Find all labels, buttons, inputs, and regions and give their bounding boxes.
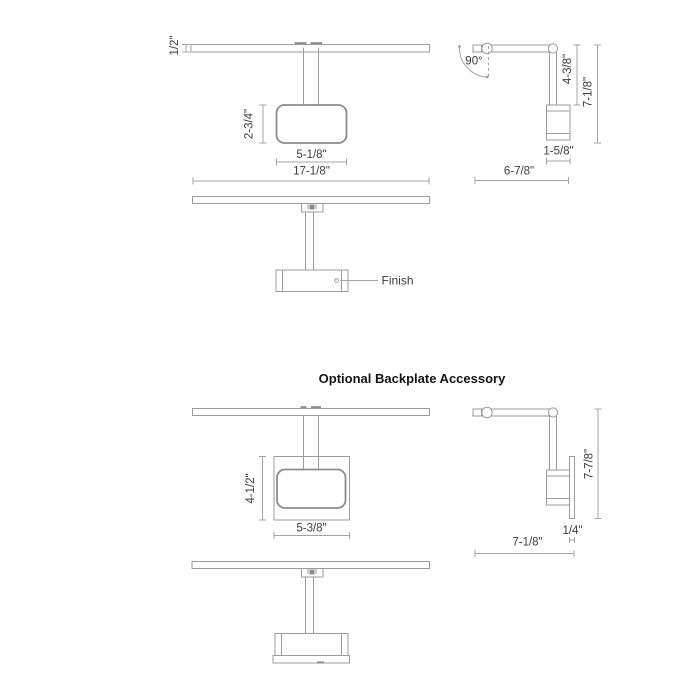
mount-bracket (302, 204, 324, 213)
section-title: Optional Backplate Accessory (319, 371, 506, 386)
dim-overall-depth: 7-1/8" (475, 537, 574, 558)
light-bar (192, 562, 430, 569)
set-screw (310, 205, 315, 210)
dim-overall-height: 7-7/8" (584, 409, 602, 519)
fixture-side-view: 90° 4-3/8" 7-1/8" 1-5/8" 6-7/8" (458, 43, 601, 184)
finish-callout: Finish (340, 274, 414, 288)
dimension-drawing: 1/2" 2-3/4" 5-1/8" 17-1/8" (0, 0, 700, 700)
canopy (275, 634, 348, 656)
arm-pivot (548, 44, 557, 53)
backplate-square (274, 457, 350, 521)
accessory-side-view: 7-7/8" 1/4" 7-1/8" (473, 407, 602, 557)
stem (306, 212, 314, 270)
backplate-edge (273, 656, 350, 664)
dim-head-width: 1-5/8" (543, 146, 573, 165)
dim-plate-thickness: 1/4" (562, 525, 582, 543)
mount-bracket (302, 569, 324, 578)
fixture-rear-view: Finish (193, 197, 430, 292)
backplate-profile (570, 457, 575, 519)
dim-label-overall-height: 7-7/8" (584, 449, 596, 479)
lamp-head (547, 105, 571, 140)
dim-bar-height: 1/2" (169, 35, 190, 55)
light-bar (193, 409, 430, 416)
dim-label-backplate-width: 5-1/8" (296, 149, 326, 161)
stem (304, 52, 319, 105)
dim-label-backplate-width: 5-3/8" (296, 523, 326, 535)
accessory-front-view: 4-1/2" 5-3/8" (193, 407, 430, 539)
stem (306, 577, 314, 634)
dim-overall-height: 7-1/8" (583, 45, 601, 143)
dim-label-backplate-height: 2-3/4" (244, 109, 256, 139)
backplate (277, 105, 347, 143)
dim-label-head-width: 1-5/8" (543, 146, 573, 158)
dim-overall-depth: 6-7/8" (475, 166, 569, 185)
canopy (276, 270, 348, 292)
dim-label-overall-depth: 6-7/8" (504, 166, 534, 178)
dim-label-overall-width: 17-1/8" (293, 166, 330, 178)
stem (550, 52, 557, 105)
arm-pivot (548, 408, 557, 417)
dim-backplate-width: 5-1/8" (277, 149, 347, 166)
dim-backplate-height: 2-3/4" (244, 105, 267, 143)
dim-arm-drop: 4-3/8" (562, 45, 580, 105)
dim-label-overall-depth: 7-1/8" (512, 537, 542, 549)
wall-pivot (482, 407, 492, 417)
wall-pivot (482, 43, 492, 53)
set-screw (310, 570, 315, 575)
finish-label: Finish (382, 274, 414, 288)
dim-label-bar-height: 1/2" (169, 35, 181, 55)
dim-backplate-height: 4-1/2" (245, 457, 266, 521)
accessory-rear-view (192, 562, 430, 664)
dim-label-plate-thickness: 1/4" (562, 525, 582, 537)
dim-label-overall-height: 7-1/8" (583, 77, 595, 107)
dim-overall-width: 17-1/8" (193, 166, 429, 185)
stem (550, 416, 557, 470)
dim-label-swivel-angle: 90° (465, 56, 482, 68)
light-bar (191, 45, 430, 53)
dim-label-backplate-height: 4-1/2" (245, 473, 257, 503)
dim-label-arm-drop: 4-3/8" (562, 54, 574, 84)
dim-backplate-width: 5-3/8" (274, 523, 350, 540)
light-bar (193, 197, 430, 204)
spec-sheet: 1/2" 2-3/4" 5-1/8" 17-1/8" (0, 0, 700, 700)
lamp-head (547, 470, 571, 505)
fixture-front-view: 1/2" 2-3/4" 5-1/8" 17-1/8" (169, 35, 429, 184)
